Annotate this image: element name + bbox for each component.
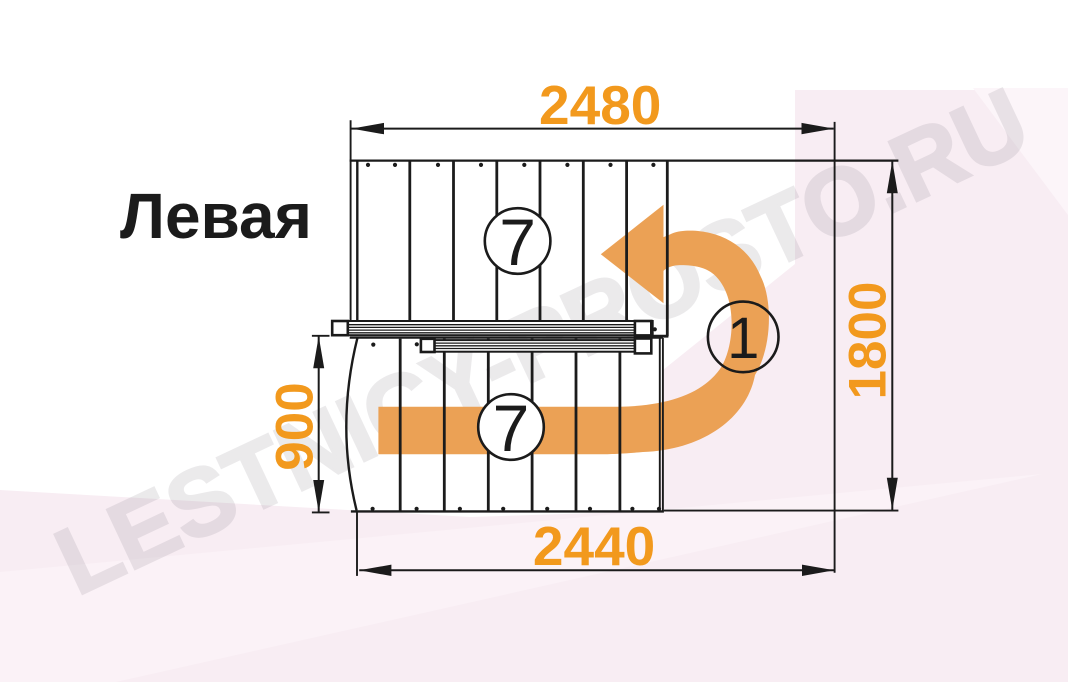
svg-text:7: 7 xyxy=(493,391,530,465)
svg-text:900: 900 xyxy=(266,382,325,470)
svg-text:Левая: Левая xyxy=(120,180,312,252)
svg-text:1800: 1800 xyxy=(839,282,898,400)
svg-text:2440: 2440 xyxy=(533,515,655,577)
svg-text:1: 1 xyxy=(727,306,759,371)
svg-text:7: 7 xyxy=(499,205,536,279)
svg-text:2480: 2480 xyxy=(539,74,661,136)
